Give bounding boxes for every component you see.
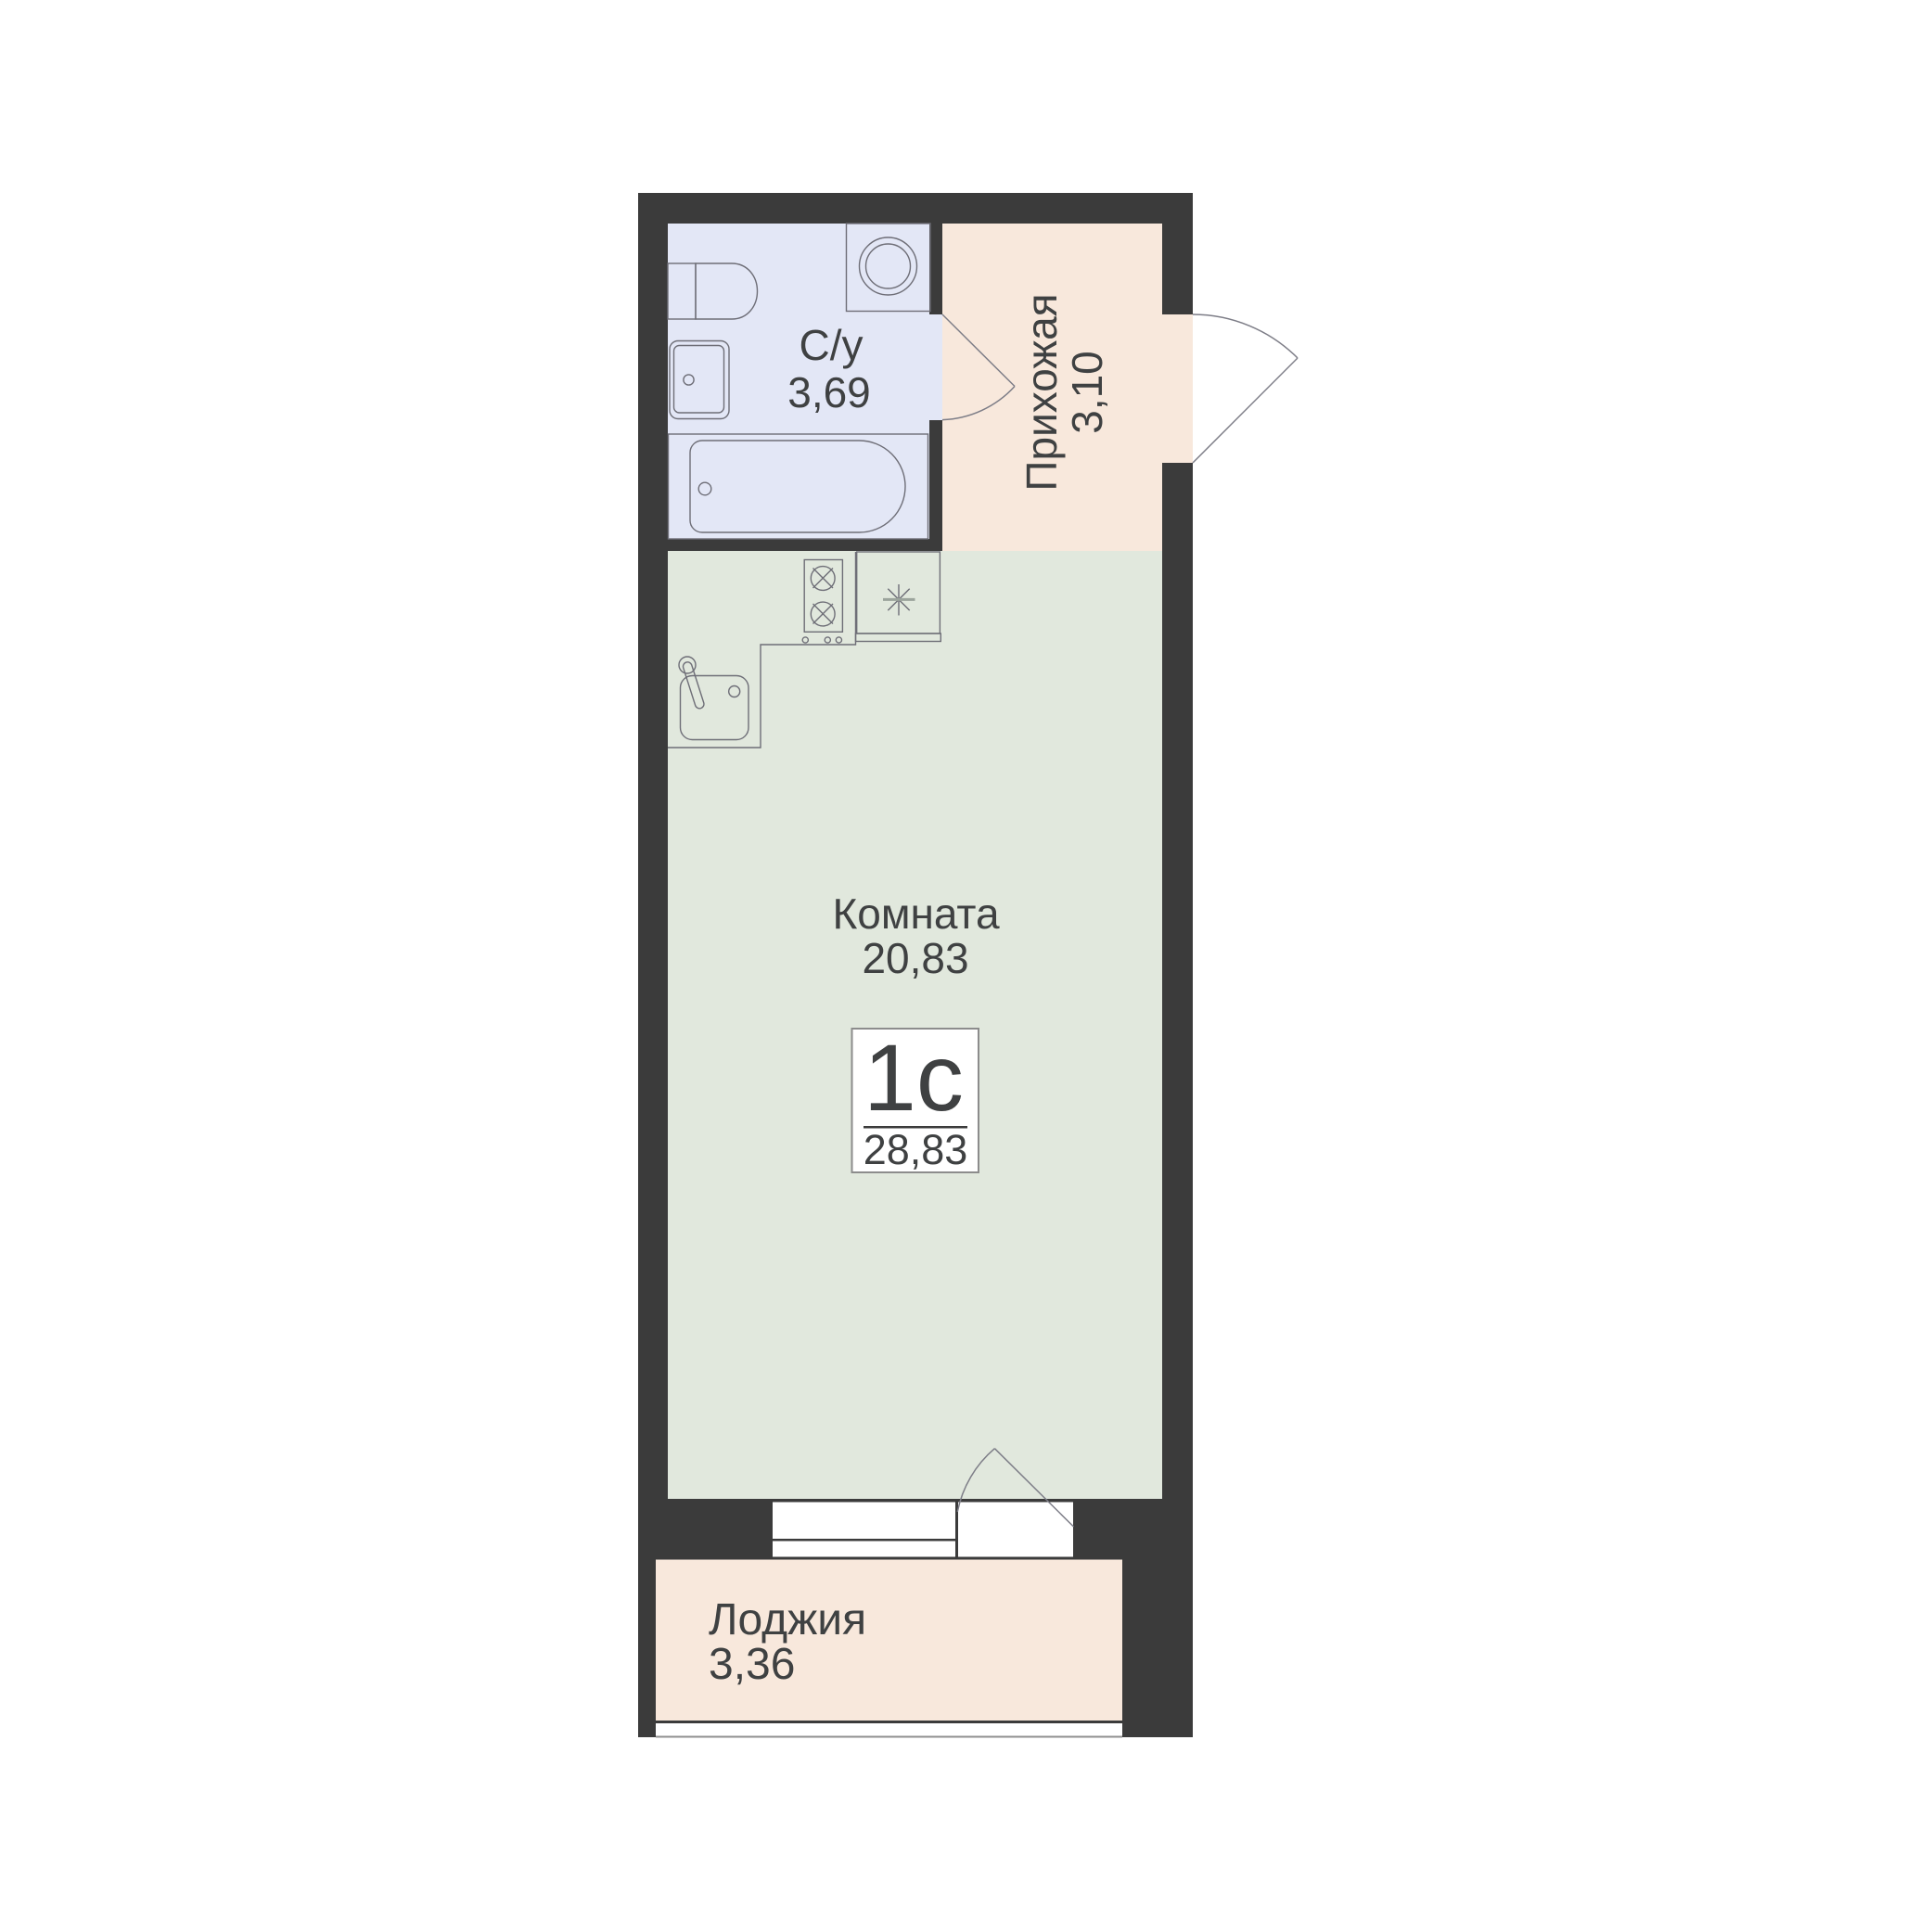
svg-text:Прихожая: Прихожая xyxy=(1017,293,1066,491)
svg-text:Комната: Комната xyxy=(832,889,1000,938)
svg-text:3,36: 3,36 xyxy=(709,1640,795,1689)
svg-text:С/у: С/у xyxy=(800,321,864,369)
svg-text:3,69: 3,69 xyxy=(787,368,871,416)
svg-text:3,10: 3,10 xyxy=(1063,351,1111,434)
svg-text:Лоджия: Лоджия xyxy=(709,1595,866,1644)
svg-text:20,83: 20,83 xyxy=(862,934,968,982)
svg-text:1с: 1с xyxy=(864,1025,964,1131)
svg-text:28,83: 28,83 xyxy=(864,1126,968,1173)
